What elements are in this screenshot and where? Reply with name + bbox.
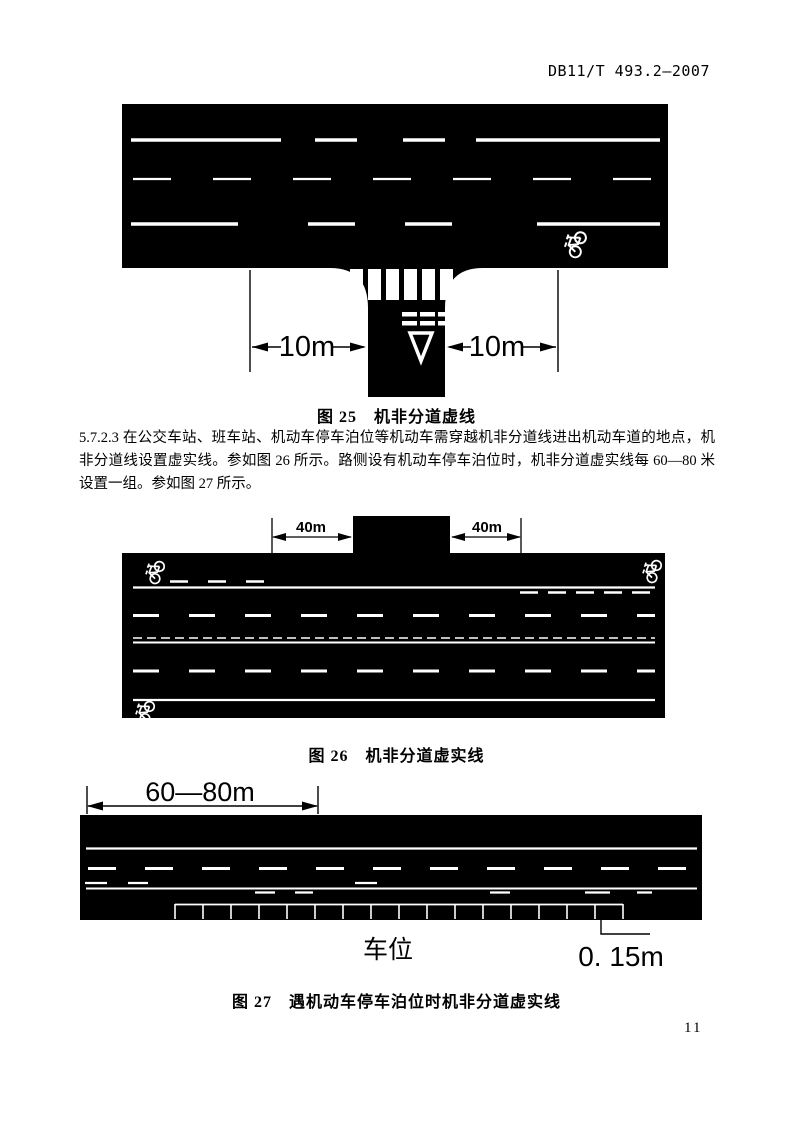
figure-26-caption: 图 26 机非分道虚实线 bbox=[0, 742, 793, 766]
fig26-dim-left-label: 40m bbox=[296, 519, 326, 536]
doc-number: DB11/T 493.2—2007 bbox=[548, 62, 710, 80]
fig27-dimension-span: 60—80m bbox=[87, 777, 318, 814]
figure-26-diagram: 40m 40m bbox=[100, 505, 700, 730]
page-number: 11 bbox=[684, 1020, 702, 1037]
fig27-line-width-label: 0. 15m bbox=[578, 941, 664, 972]
figure-27-caption: 图 27 遇机动车停车泊位时机非分道虚实线 bbox=[0, 988, 793, 1012]
fig26-bus-stop-block bbox=[353, 516, 450, 554]
fig25-main-road bbox=[122, 104, 668, 268]
fig25-dimension-left: 10m bbox=[250, 270, 366, 372]
fig25-dim-left-label: 10m bbox=[279, 331, 335, 363]
clause-5-7-2-3-text: 5.7.2.3 在公交车站、班车站、机动车停车泊位等机动车需穿越机非分道线进出机… bbox=[79, 427, 715, 497]
figure-25-caption: 图 25 机非分道虚线 bbox=[0, 403, 793, 427]
fig25-dimension-right: 10m bbox=[447, 270, 558, 372]
fig26-dimension-right: 40m bbox=[451, 518, 521, 557]
fig27-parking-label: 车位 bbox=[363, 936, 413, 964]
figure-27-diagram: 60—80m 车位 0. 15m bbox=[60, 770, 740, 975]
fig26-dimension-left: 40m bbox=[272, 518, 352, 557]
fig27-leader-line bbox=[601, 919, 650, 934]
fig25-dim-right-label: 10m bbox=[469, 331, 525, 363]
fig27-dim-span-label: 60—80m bbox=[145, 777, 255, 807]
fig26-dim-right-label: 40m bbox=[472, 519, 502, 536]
document-page: DB11/T 493.2—2007 bbox=[0, 0, 793, 1121]
figure-25-diagram: 10m 10m bbox=[100, 95, 700, 405]
fig26-road bbox=[122, 553, 665, 718]
